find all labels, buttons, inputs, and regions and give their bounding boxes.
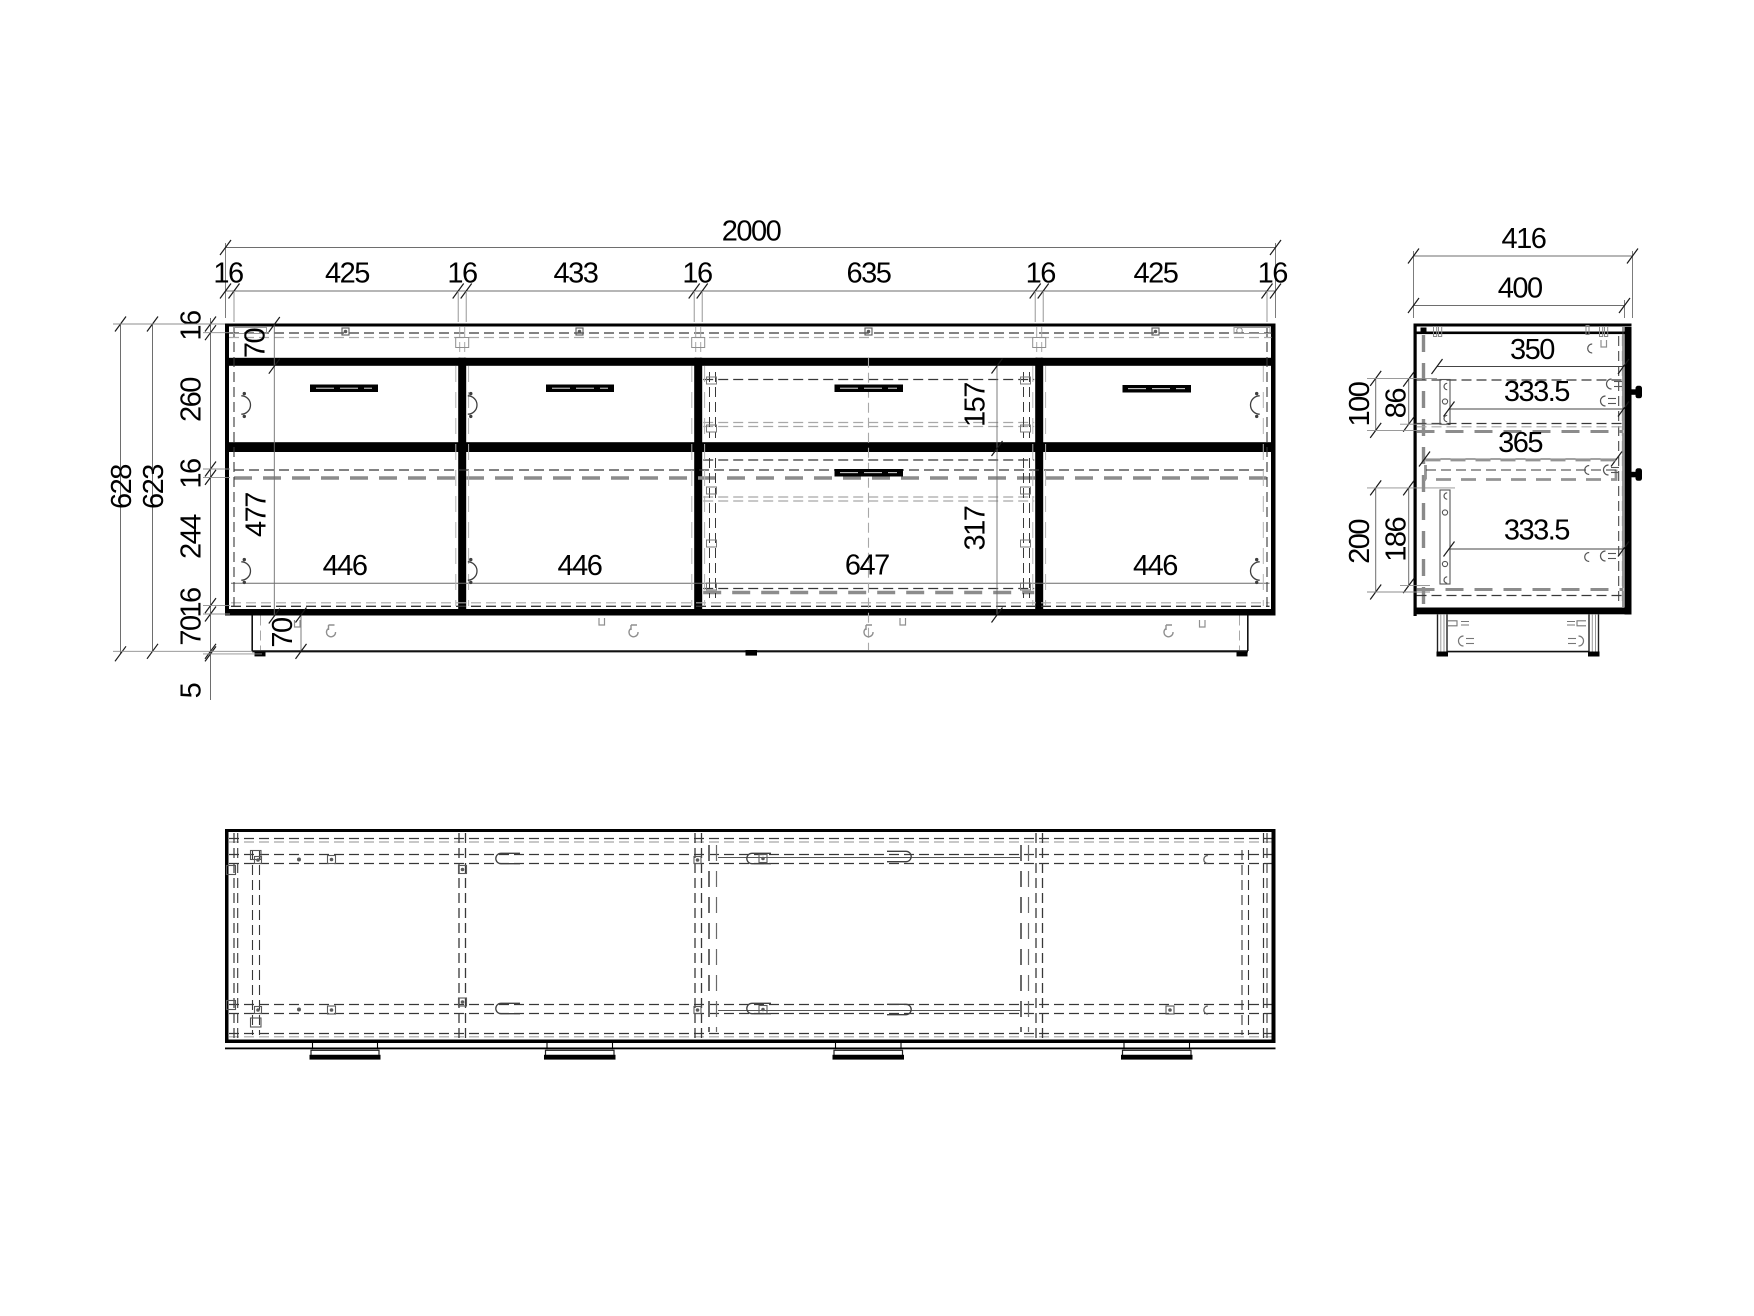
svg-text:425: 425 [325,258,369,290]
svg-text:628: 628 [106,465,138,509]
svg-text:446: 446 [1133,550,1177,582]
svg-text:350: 350 [1510,334,1554,366]
svg-text:333.5: 333.5 [1504,376,1569,408]
svg-text:16: 16 [447,258,477,290]
svg-text:200: 200 [1344,520,1376,564]
svg-text:16: 16 [213,258,243,290]
svg-text:446: 446 [558,550,602,582]
svg-text:635: 635 [846,258,890,290]
svg-text:317: 317 [960,506,992,550]
svg-text:647: 647 [845,550,889,582]
svg-text:16: 16 [176,588,208,618]
svg-text:400: 400 [1498,273,1542,305]
svg-text:260: 260 [176,378,208,422]
svg-text:333.5: 333.5 [1504,515,1569,547]
svg-text:2000: 2000 [722,216,781,248]
svg-text:446: 446 [323,550,367,582]
svg-text:623: 623 [138,465,170,509]
svg-text:157: 157 [960,383,992,427]
svg-text:16: 16 [176,311,208,341]
svg-text:70: 70 [267,618,299,648]
svg-text:70: 70 [176,616,208,646]
svg-text:70: 70 [240,329,272,359]
svg-text:433: 433 [554,258,598,290]
svg-text:5: 5 [176,683,208,698]
svg-text:186: 186 [1380,517,1412,561]
svg-text:16: 16 [176,459,208,489]
svg-text:86: 86 [1380,389,1412,419]
svg-text:477: 477 [241,493,273,537]
svg-text:244: 244 [176,514,208,559]
svg-text:16: 16 [1026,258,1056,290]
svg-text:365: 365 [1498,427,1542,459]
svg-text:100: 100 [1344,382,1376,426]
svg-text:425: 425 [1133,258,1177,290]
svg-text:16: 16 [682,258,712,290]
svg-text:416: 416 [1501,223,1545,255]
svg-text:16: 16 [1258,258,1288,290]
